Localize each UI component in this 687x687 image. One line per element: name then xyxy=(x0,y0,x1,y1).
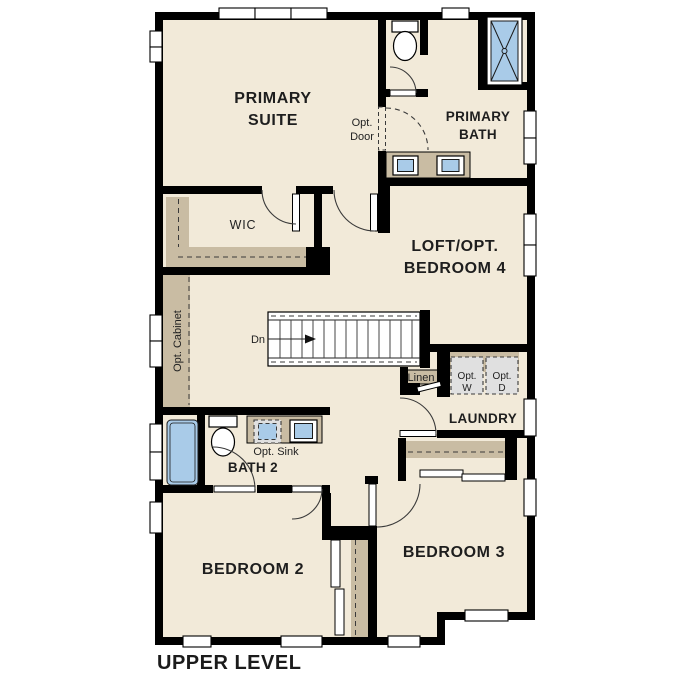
bedroom2-closet-bypass-door xyxy=(335,589,344,635)
floorplan-upper-level: Dn xyxy=(0,0,687,687)
bedroom2-closet-bypass-door xyxy=(331,540,340,587)
floorplan-page: Dn xyxy=(0,0,687,687)
opt-washer-label-line1: Opt. xyxy=(458,371,477,382)
window xyxy=(291,8,327,19)
sink-bowl-icon xyxy=(398,160,414,172)
primary-suite-label-line1: PRIMARY xyxy=(234,90,311,107)
laundry-door-leaf xyxy=(400,431,436,437)
toilet-bowl-icon xyxy=(212,428,235,456)
stairs: Dn xyxy=(251,312,420,366)
bath2-door-leaf xyxy=(214,486,255,492)
opt-dryer-label-line1: Opt. xyxy=(493,371,512,382)
stairs-down-label: Dn xyxy=(251,334,265,346)
window xyxy=(150,341,162,367)
primary-bath-label-line1: PRIMARY xyxy=(446,109,511,124)
window xyxy=(255,8,291,19)
primary-suite-label-line2: SUITE xyxy=(248,112,298,129)
window xyxy=(524,399,536,436)
shower-drain-icon xyxy=(502,49,507,54)
opt-cabinet-label: Opt. Cabinet xyxy=(172,310,184,372)
window xyxy=(465,610,508,621)
wic-rod-left xyxy=(166,197,189,250)
optional-sink-bowl-icon xyxy=(259,424,277,440)
wic-label: WIC xyxy=(230,218,257,232)
window xyxy=(388,636,420,647)
loft-bedroom4-label-line1: LOFT/OPT. xyxy=(411,238,498,255)
toilet-tank-icon xyxy=(392,21,418,32)
bedroom3-closet-bypass-door xyxy=(462,474,505,481)
window xyxy=(150,452,162,480)
window xyxy=(524,111,536,138)
sink-bowl-icon xyxy=(295,424,313,439)
window xyxy=(524,479,536,516)
toilet-room-door-leaf xyxy=(390,90,416,96)
window xyxy=(183,636,211,647)
bedroom3-door-leaf xyxy=(369,484,376,526)
window xyxy=(150,315,162,341)
bedroom2-label: BEDROOM 2 xyxy=(202,561,304,578)
linen-label: Linen xyxy=(408,372,435,384)
loft-bedroom4-label-line2: BEDROOM 4 xyxy=(404,260,506,277)
opt-door-label-line1: Opt. xyxy=(352,117,373,129)
bathtub-icon xyxy=(167,420,198,485)
window xyxy=(524,138,536,164)
bedroom3-label: BEDROOM 3 xyxy=(403,544,505,561)
bath2-label: BATH 2 xyxy=(228,460,278,475)
opt-dryer-label-line2: D xyxy=(498,383,505,394)
window xyxy=(150,502,162,533)
toilet-tank-icon xyxy=(209,416,237,427)
window xyxy=(281,636,322,647)
window xyxy=(524,214,536,245)
opt-door-label-line2: Door xyxy=(350,131,374,143)
opt-sink-label: Opt. Sink xyxy=(253,446,299,458)
bedroom2-door-leaf xyxy=(292,486,322,492)
window xyxy=(524,245,536,276)
window xyxy=(219,8,255,19)
bedroom3-closet-rod xyxy=(406,441,505,458)
primary-bath-label-line2: BATH xyxy=(459,127,497,142)
wic-door-leaf xyxy=(293,194,300,231)
optional-door-leaf xyxy=(379,107,386,150)
window xyxy=(150,424,162,452)
opt-washer-label-line2: W xyxy=(462,383,472,394)
laundry-label: LAUNDRY xyxy=(449,411,517,426)
primary-suite-door-leaf xyxy=(371,194,378,231)
window xyxy=(150,31,162,47)
toilet-bowl-icon xyxy=(394,32,417,61)
page-title: UPPER LEVEL xyxy=(157,652,301,674)
sink-bowl-icon xyxy=(442,160,459,172)
bedroom3-closet-bypass-door xyxy=(420,470,463,477)
window xyxy=(150,47,162,62)
window xyxy=(442,8,469,19)
bedroom2-closet-rod xyxy=(351,538,368,637)
